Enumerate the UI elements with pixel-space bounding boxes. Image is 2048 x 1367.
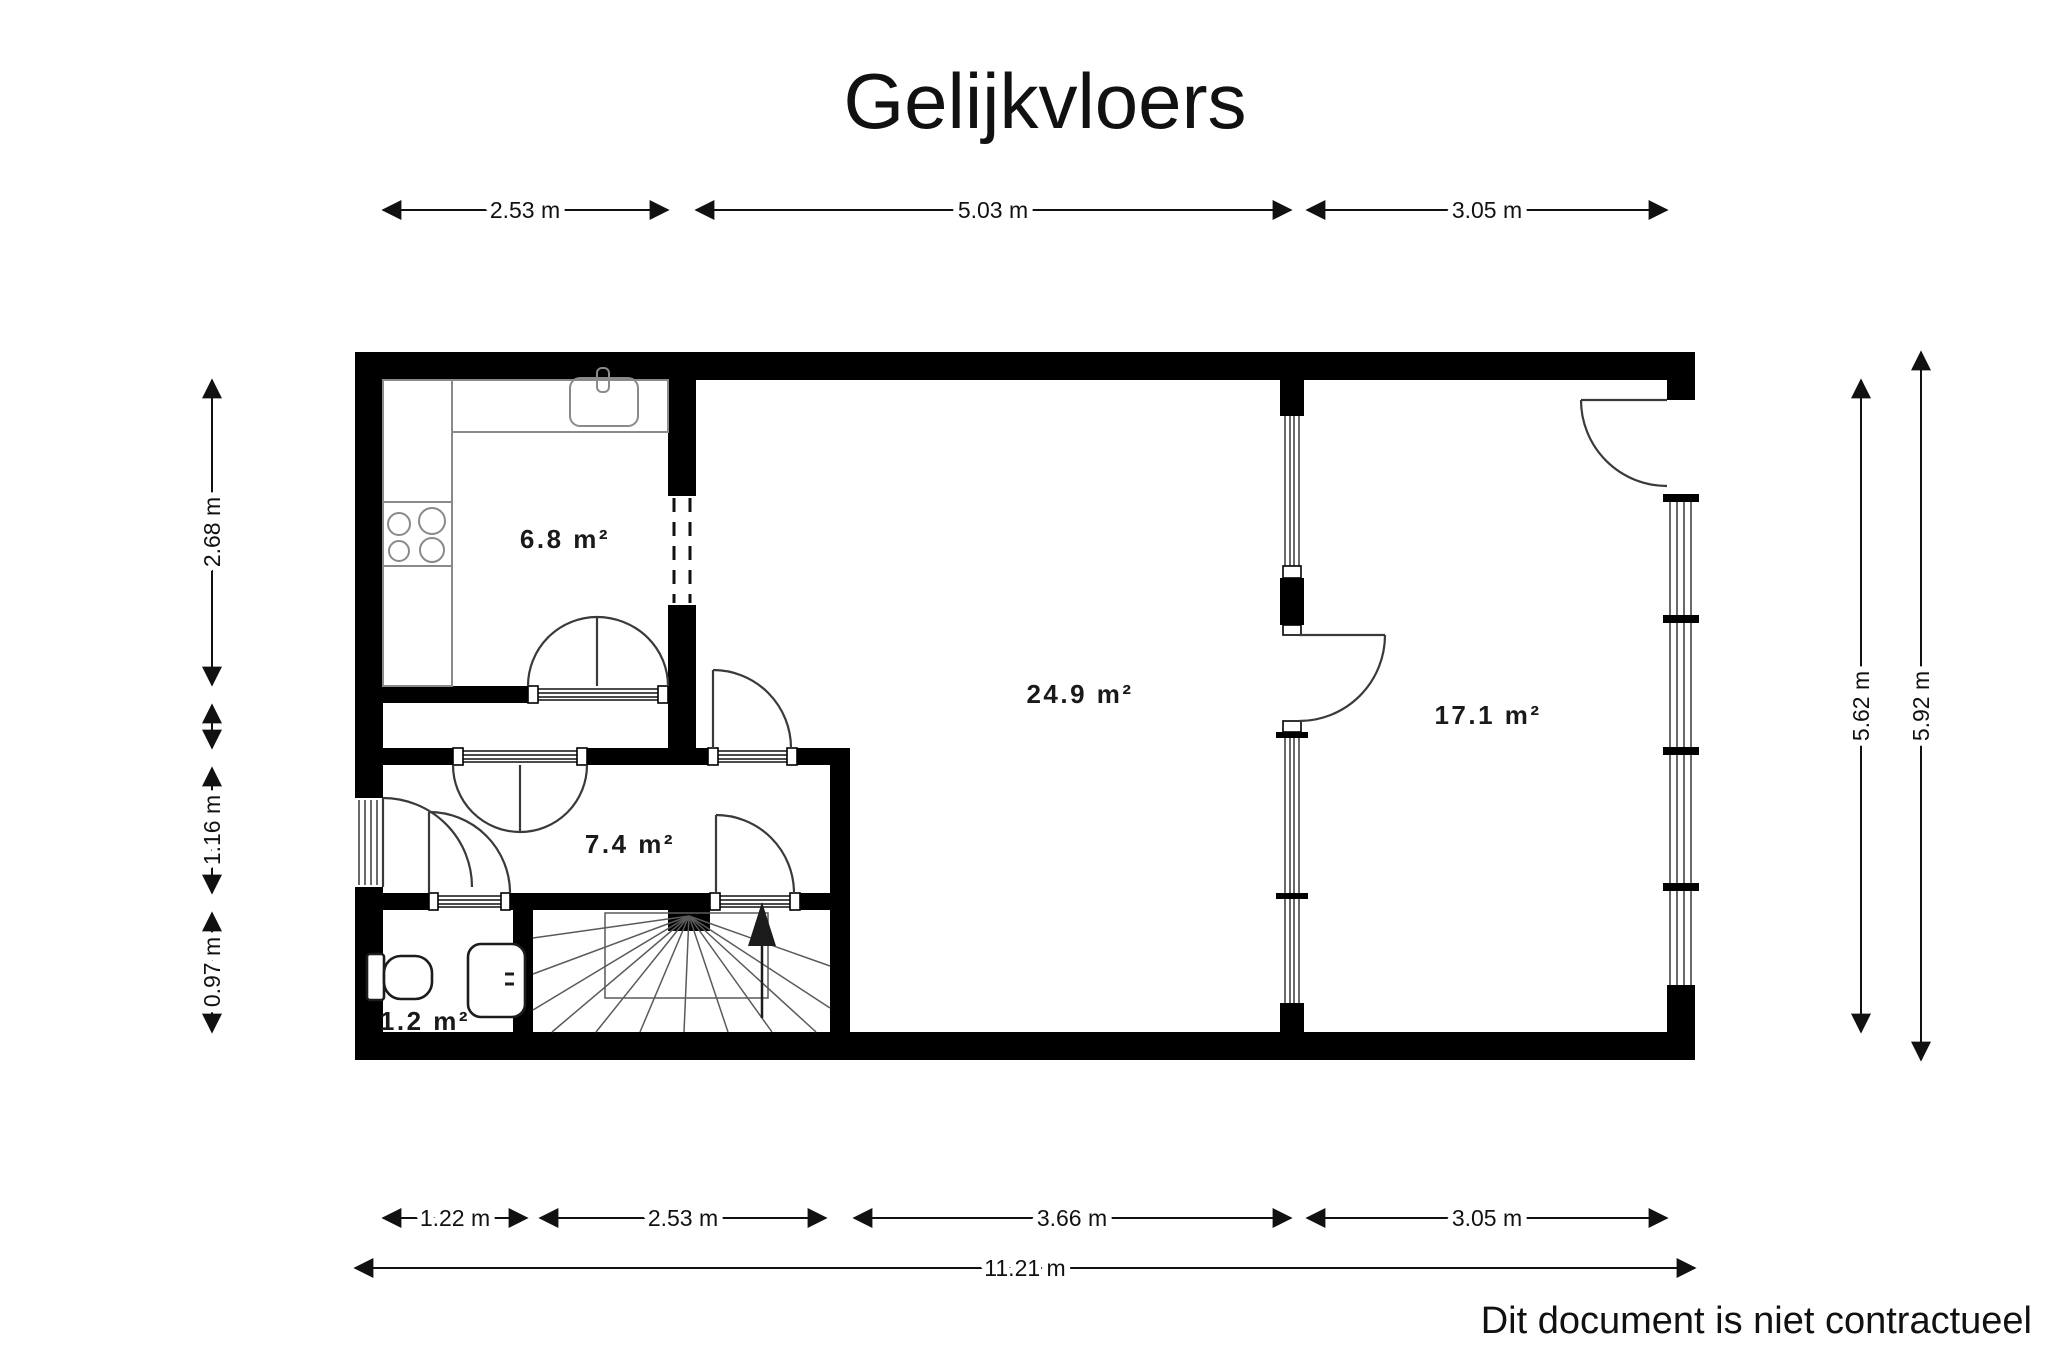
wc-door-sill: [429, 893, 510, 910]
hall-living-door: [713, 670, 791, 748]
hall-double-door-sill: [453, 748, 587, 765]
doors: [383, 400, 1667, 893]
stairwell-right-wall: [830, 748, 850, 1032]
kitchen-right-wall-lower: [668, 605, 696, 748]
stair-door: [716, 815, 794, 893]
room-label-kitchen: 6.8 m²: [520, 524, 610, 554]
kitchen-right-wall-upper: [668, 380, 696, 496]
plan-title: Gelijkvloers: [843, 57, 1246, 145]
kitchen-double-door-sill: [528, 686, 668, 703]
divider-glazing: [1283, 416, 1301, 1003]
floor-plan-page: Gelijkvloers Dit document is niet contra…: [0, 0, 2048, 1367]
floor-plan-drawing: Gelijkvloers Dit document is niet contra…: [0, 0, 2048, 1367]
garage-right-windows: [1663, 494, 1699, 985]
wc-door: [429, 812, 510, 893]
thresholds: [429, 686, 800, 910]
garage-divider-door: [1299, 635, 1385, 721]
room-label-wc: 1.2 m²: [380, 1006, 470, 1036]
dim-top-living: 5.03 m: [958, 197, 1028, 223]
dim-bottom-garage: 3.05 m: [1452, 1205, 1522, 1231]
staircase: [533, 902, 830, 1032]
stair-door-sill: [710, 893, 800, 910]
dim-right-inner: 5.62 m: [1848, 671, 1874, 741]
room-labels: 6.8 m² 24.9 m² 17.1 m² 7.4 m² 1.2 m²: [380, 524, 1542, 1036]
dim-bottom-wc: 1.22 m: [420, 1205, 490, 1231]
dim-bottom-living: 3.66 m: [1037, 1205, 1107, 1231]
stairs-up-arrow-icon: [748, 902, 776, 1018]
room-label-hall: 7.4 m²: [585, 829, 675, 859]
toilet-icon: [367, 954, 432, 1000]
disclaimer-text: Dit document is niet contractueel: [1481, 1300, 2032, 1342]
hall-living-door-sill: [708, 748, 797, 765]
dim-top-kitchen: 2.53 m: [490, 197, 560, 223]
dim-left-hall: 1.16 m: [199, 795, 225, 865]
dim-left-wc: 0.97 m: [199, 937, 225, 1007]
room-label-living: 24.9 m²: [1026, 679, 1133, 709]
dim-left-kitchen: 2.68 m: [199, 497, 225, 567]
washbasin-icon: [468, 944, 525, 1017]
front-entrance-glazing: [355, 798, 383, 887]
kitchen-counter-top: [452, 380, 668, 432]
kitchen-double-door: [528, 617, 668, 686]
dim-total-width: 11.21 m: [984, 1255, 1065, 1281]
garage-exterior-door: [1581, 400, 1667, 486]
hall-double-door: [453, 765, 587, 832]
dim-bottom-stairs: 2.53 m: [648, 1205, 718, 1231]
cooktop-icon: [388, 508, 445, 562]
kitchen-bottom-wall: [383, 686, 528, 703]
dim-right-outer: 5.92 m: [1908, 671, 1934, 741]
dim-top-garage: 3.05 m: [1452, 197, 1522, 223]
front-door: [383, 798, 472, 887]
room-label-garage: 17.1 m²: [1434, 700, 1541, 730]
